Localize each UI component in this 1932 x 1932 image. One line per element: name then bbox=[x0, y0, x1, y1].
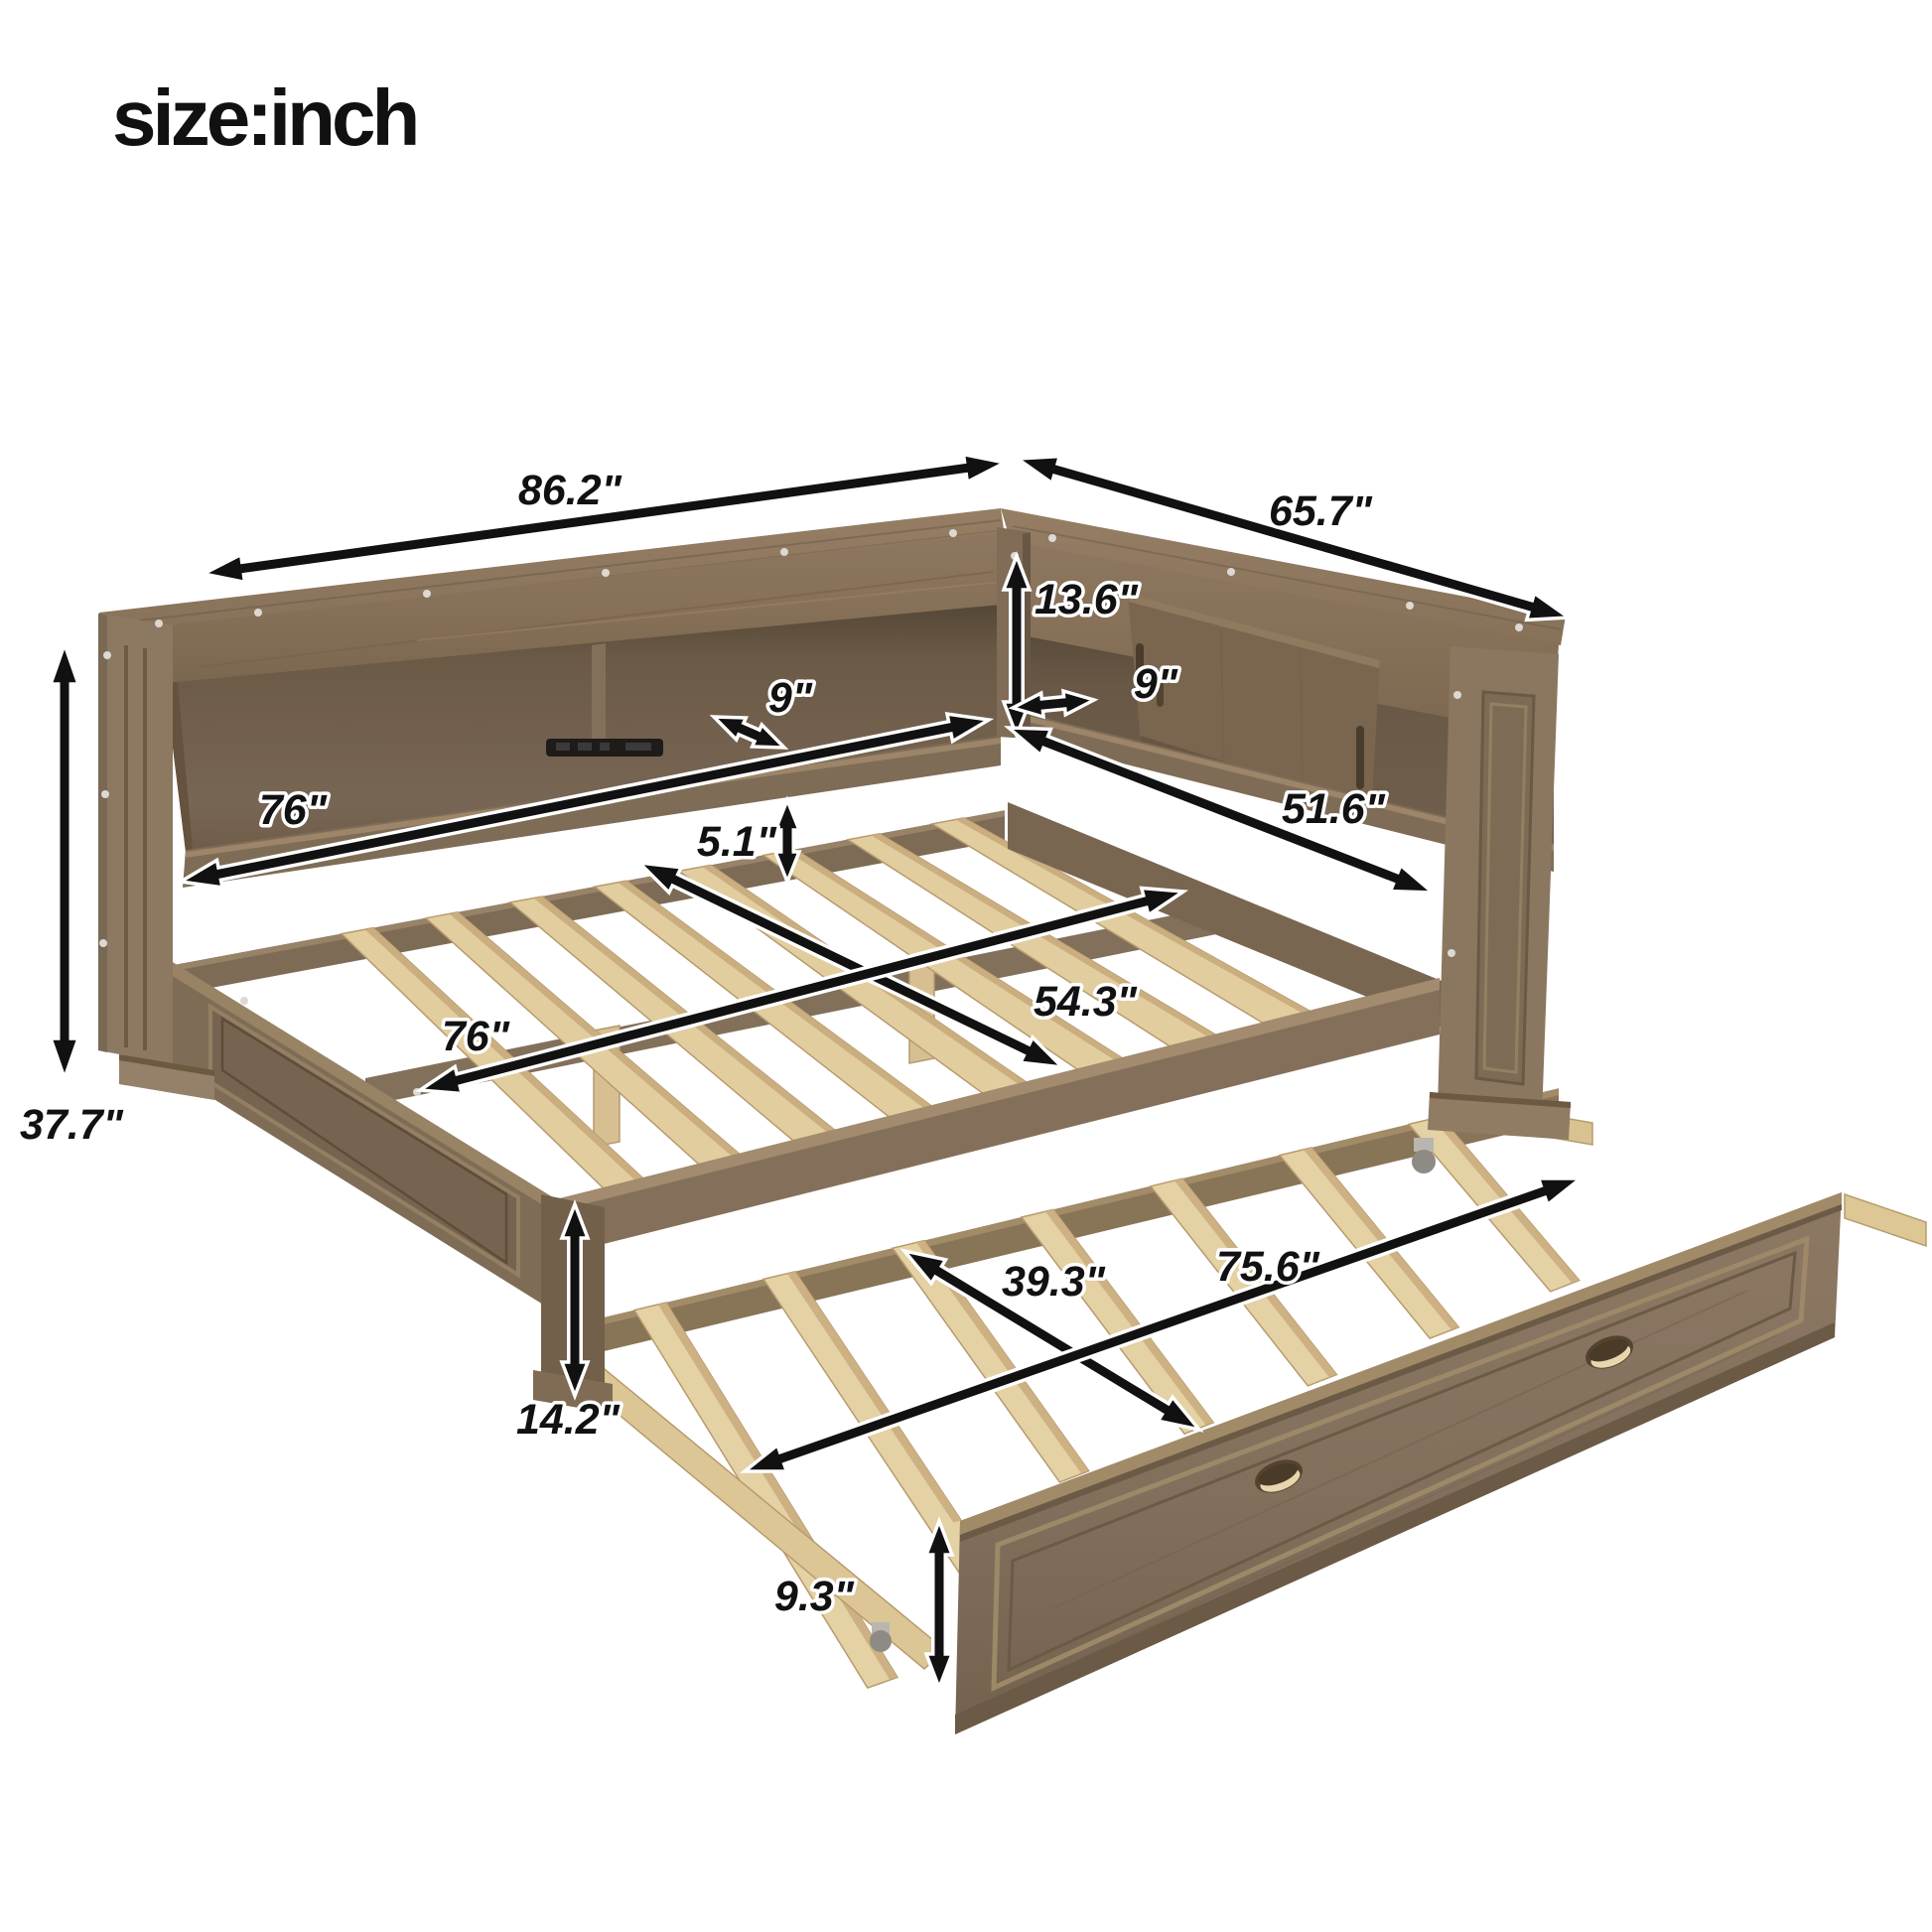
svg-text:9": 9" bbox=[768, 674, 813, 722]
svg-text:9": 9" bbox=[1134, 660, 1178, 708]
svg-text:65.7": 65.7" bbox=[1269, 487, 1373, 535]
svg-text:86.2": 86.2" bbox=[518, 467, 622, 514]
svg-text:76": 76" bbox=[259, 786, 328, 834]
svg-text:75.6": 75.6" bbox=[1216, 1243, 1320, 1291]
svg-text:size:inch: size:inch bbox=[112, 73, 416, 162]
svg-text:54.3": 54.3" bbox=[1034, 978, 1138, 1026]
svg-text:37.7": 37.7" bbox=[20, 1101, 124, 1149]
svg-text:14.2": 14.2" bbox=[516, 1396, 621, 1444]
svg-text:39.3": 39.3" bbox=[1002, 1258, 1106, 1306]
svg-text:9.3": 9.3" bbox=[774, 1573, 855, 1620]
svg-text:51.6": 51.6" bbox=[1282, 785, 1386, 833]
svg-text:76": 76" bbox=[442, 1013, 510, 1060]
svg-text:13.6": 13.6" bbox=[1035, 576, 1139, 623]
svg-text:5.1": 5.1" bbox=[697, 818, 777, 866]
